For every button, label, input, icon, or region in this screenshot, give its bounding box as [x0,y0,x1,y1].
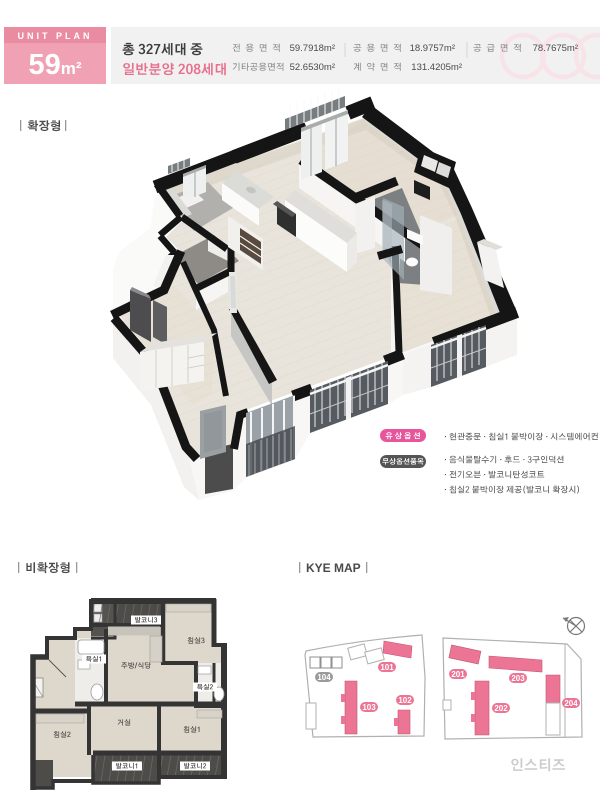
svg-text:204: 204 [564,699,578,708]
svg-text:202: 202 [494,704,508,713]
svg-text:52.6530m²: 52.6530m² [290,62,335,73]
svg-text:203: 203 [511,674,525,683]
svg-text:18.9757m²: 18.9757m² [410,43,455,54]
svg-text:103: 103 [362,703,376,712]
svg-text:131.4205m²: 131.4205m² [411,62,462,73]
svg-text:101: 101 [380,663,394,672]
svg-text:78.7675m²: 78.7675m² [533,43,578,54]
svg-text:UNIT PLAN: UNIT PLAN [18,31,93,41]
svg-text:102: 102 [398,696,412,705]
svg-text:201: 201 [451,670,465,679]
svg-text:59.7918m²: 59.7918m² [290,43,335,54]
svg-text:104: 104 [317,673,331,682]
svg-text:KYE MAP: KYE MAP [306,561,361,575]
